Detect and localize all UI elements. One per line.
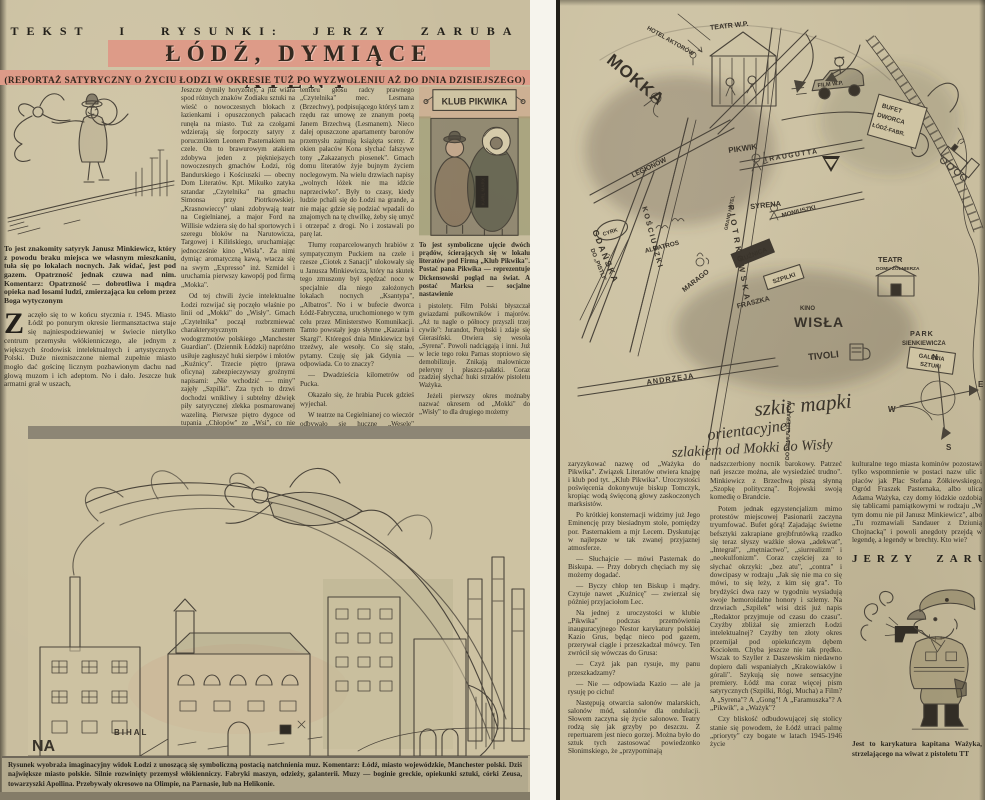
left-column-3: tembru głosu radcy prawnego „Czytelnika"… — [300, 86, 414, 426]
club-sign-label: KLUB PIKWIKA — [442, 97, 508, 107]
body-paragraph: — Dwadzieścia kilometrów od Pucka. — [300, 371, 414, 388]
body-paragraph: i pistolety. Film Polski błyszczał gwiaz… — [419, 303, 530, 390]
ground-hatching — [8, 220, 80, 234]
military-cap — [907, 590, 975, 619]
right-column-2: nadszczerbiony nocnik barokowy. Patrzeć … — [710, 460, 842, 798]
opening-text: aczęło się to w końcu stycznia r. 1945. … — [4, 310, 176, 389]
body-paragraph: — Nie — odpowiada Kazio — ale ja rysuję … — [568, 680, 700, 696]
syrena-triangle-sign — [822, 156, 840, 172]
compass-s: S — [946, 443, 952, 452]
wazyk-caricature — [852, 571, 982, 733]
right-page: FILM W.P. BUFET DWORCA ŁÓDŹ-FABR. — [556, 0, 985, 800]
map-label-cyrk: CYRK — [602, 227, 618, 237]
gun-smoke — [861, 592, 898, 641]
tightrope — [8, 181, 174, 222]
tightrope-cartoon — [4, 86, 176, 236]
title-banner: ŁÓDŹ, DYMIĄCE ATENY — [108, 40, 490, 67]
page-subtitle: (REPORTAŻ SATYRYCZNY O ŻYCIU ŁODZI W OKR… — [4, 76, 525, 86]
body-paragraph: Na jednej z uroczystości w klubie „Pikwi… — [568, 609, 700, 657]
opening-paragraph: Zaczęło się to w końcu stycznia r. 1945.… — [4, 311, 176, 390]
drawing-label-bihal: BIHAL — [114, 728, 148, 737]
body-paragraph: Po krótkiej konsternacji widzimy już Jeg… — [568, 511, 700, 551]
magazine-spread: TEKST I RYSUNKI: JERZY ZARUBA ŁÓDŹ, DYMI… — [0, 0, 985, 800]
tightrope-caption: To jest znakomity satyryk Janusz Minkiew… — [4, 245, 176, 306]
club-sign: KLUB PIKWIKA — [424, 90, 525, 111]
body-paragraph: kulturalne tego miasta kominów pozostawi… — [852, 460, 982, 545]
film-wp-jeep: FILM W.P. — [789, 55, 865, 102]
drop-cap: Z — [4, 312, 24, 336]
body-paragraph: tembru głosu radcy prawnego „Czytelnika"… — [300, 86, 414, 238]
map-label-kino: KINO — [800, 306, 815, 312]
body-paragraph: Czy bliskość odbudowującej się stolicy s… — [710, 715, 842, 748]
left-column-1: To jest znakomity satyryk Janusz Minkiew… — [4, 86, 176, 430]
body-paragraph: Potem jednak egzystencjalizm mimo protes… — [710, 505, 842, 713]
body-paragraph: — Byczy chłop ten Biskup i mądry. Czytuj… — [568, 582, 700, 606]
right-column-1: zaryzykować nazwę od „Ważyka do Pikwika"… — [568, 460, 700, 798]
body-paragraph: nadszczerbiony nocnik barokowy. Patrzeć … — [710, 460, 842, 502]
map-handwritten-caption: szkic mapki orientacyjnej szlakiem od Mo… — [671, 389, 932, 460]
body-paragraph: Okazało się, że hrabia Pucek gdzieś wyje… — [300, 391, 414, 408]
body-paragraph: Następują otwarcia salonów malarskich, s… — [568, 699, 700, 755]
map-label-wisla: WISŁA — [794, 314, 844, 330]
book-title: KARL MARX — [480, 178, 485, 205]
map-label-teatr-domu: DOMU ŻOŁNIERZA — [876, 265, 920, 272]
arcade-building — [414, 639, 498, 756]
handwriting-flourish — [890, 406, 932, 420]
map-label-moniuszki: MONIUSZKI — [781, 204, 817, 219]
left-page: TEKST I RYSUNKI: JERZY ZARUBA ŁÓDŹ, DYMI… — [0, 0, 530, 800]
handwriting-line: szlakiem od Mokki do Wisły — [671, 437, 833, 460]
byline: TEKST I RYSUNKI: JERZY ZARUBA — [0, 24, 530, 39]
city-panorama-frame: NA BIHAL — [28, 426, 530, 756]
muse-figure — [14, 94, 70, 162]
karl-marx-book: KARL MARX — [475, 176, 488, 208]
body-paragraph: — Słuchajcie — mówi Pasternak do Biskupa… — [568, 555, 700, 579]
handwriting-line: szkic mapki — [753, 389, 852, 421]
breeches-and-boots — [912, 689, 968, 729]
compass-n: N — [932, 353, 938, 362]
subtitle-banner: (REPORTAŻ SATYRYCZNY O ŻYCIU ŁODZI W OKR… — [0, 70, 530, 85]
map-label-teatr-domu: TEATR — [878, 255, 903, 264]
body-paragraph: — Czyż jak pan rysuje, my panu przeszkad… — [568, 660, 700, 676]
body-paragraph: W teatrze na Cegielnianej co wieczór odb… — [300, 411, 414, 426]
pencil-smudge — [675, 270, 915, 390]
muse-of-inspiration — [225, 468, 402, 531]
right-column-3: kulturalne tego miasta kominów pozostawi… — [852, 460, 982, 798]
body-paragraph: zaryzykować nazwę od „Ważyka do Pikwika"… — [568, 460, 700, 508]
map-label-teatr-wp: TEATR W.P. — [710, 21, 749, 32]
city-panorama-drawing: NA BIHAL — [28, 439, 530, 756]
body-paragraph: Tłumy rozparcelowanych hrabiów z sympaty… — [300, 241, 414, 368]
compass-e: E — [978, 380, 984, 389]
map-label-park: PARK — [910, 329, 934, 338]
author-signature: JERZY ZARUBA — [852, 553, 982, 566]
door-frame-right — [518, 116, 530, 235]
map-label-park: SIENKIEWICZA — [902, 341, 946, 347]
left-column-2: Jeszcze dymiły horyzonty, a już wiara sp… — [181, 86, 295, 426]
body-paragraph: Jeszcze dymiły horyzonty, a już wiara sp… — [181, 86, 295, 289]
city-panorama-caption: Rysunek wyobraża imaginacyjny widok Łodz… — [2, 756, 528, 793]
drawing-label-na: NA — [32, 738, 56, 755]
left-column-4: KLUB PIKWIKA KARL MARX — [419, 86, 530, 430]
river-squiggle — [958, 128, 980, 400]
pikwik-caption: To jest symboliczne ujęcie dwóch prądów,… — [419, 242, 530, 299]
lodz-sketch-map: FILM W.P. BUFET DWORCA ŁÓDŹ-FABR. — [560, 0, 985, 460]
klub-pikwika-cartoon: KLUB PIKWIKA KARL MARX — [419, 86, 530, 236]
body-paragraph: Jeżeli pierwszy okres możnaby nazwać okr… — [419, 393, 530, 417]
wazyk-caption: Jest to karykatura kapitana Ważyka, strz… — [852, 739, 982, 759]
bottom-band — [0, 792, 530, 800]
map-label-andrzeja: ANDRZEJA — [646, 371, 695, 387]
right-building — [328, 597, 400, 756]
door-frame-left — [419, 116, 431, 235]
body-paragraph: Od tej chwili życie intelektualne Łodzi … — [181, 292, 295, 426]
